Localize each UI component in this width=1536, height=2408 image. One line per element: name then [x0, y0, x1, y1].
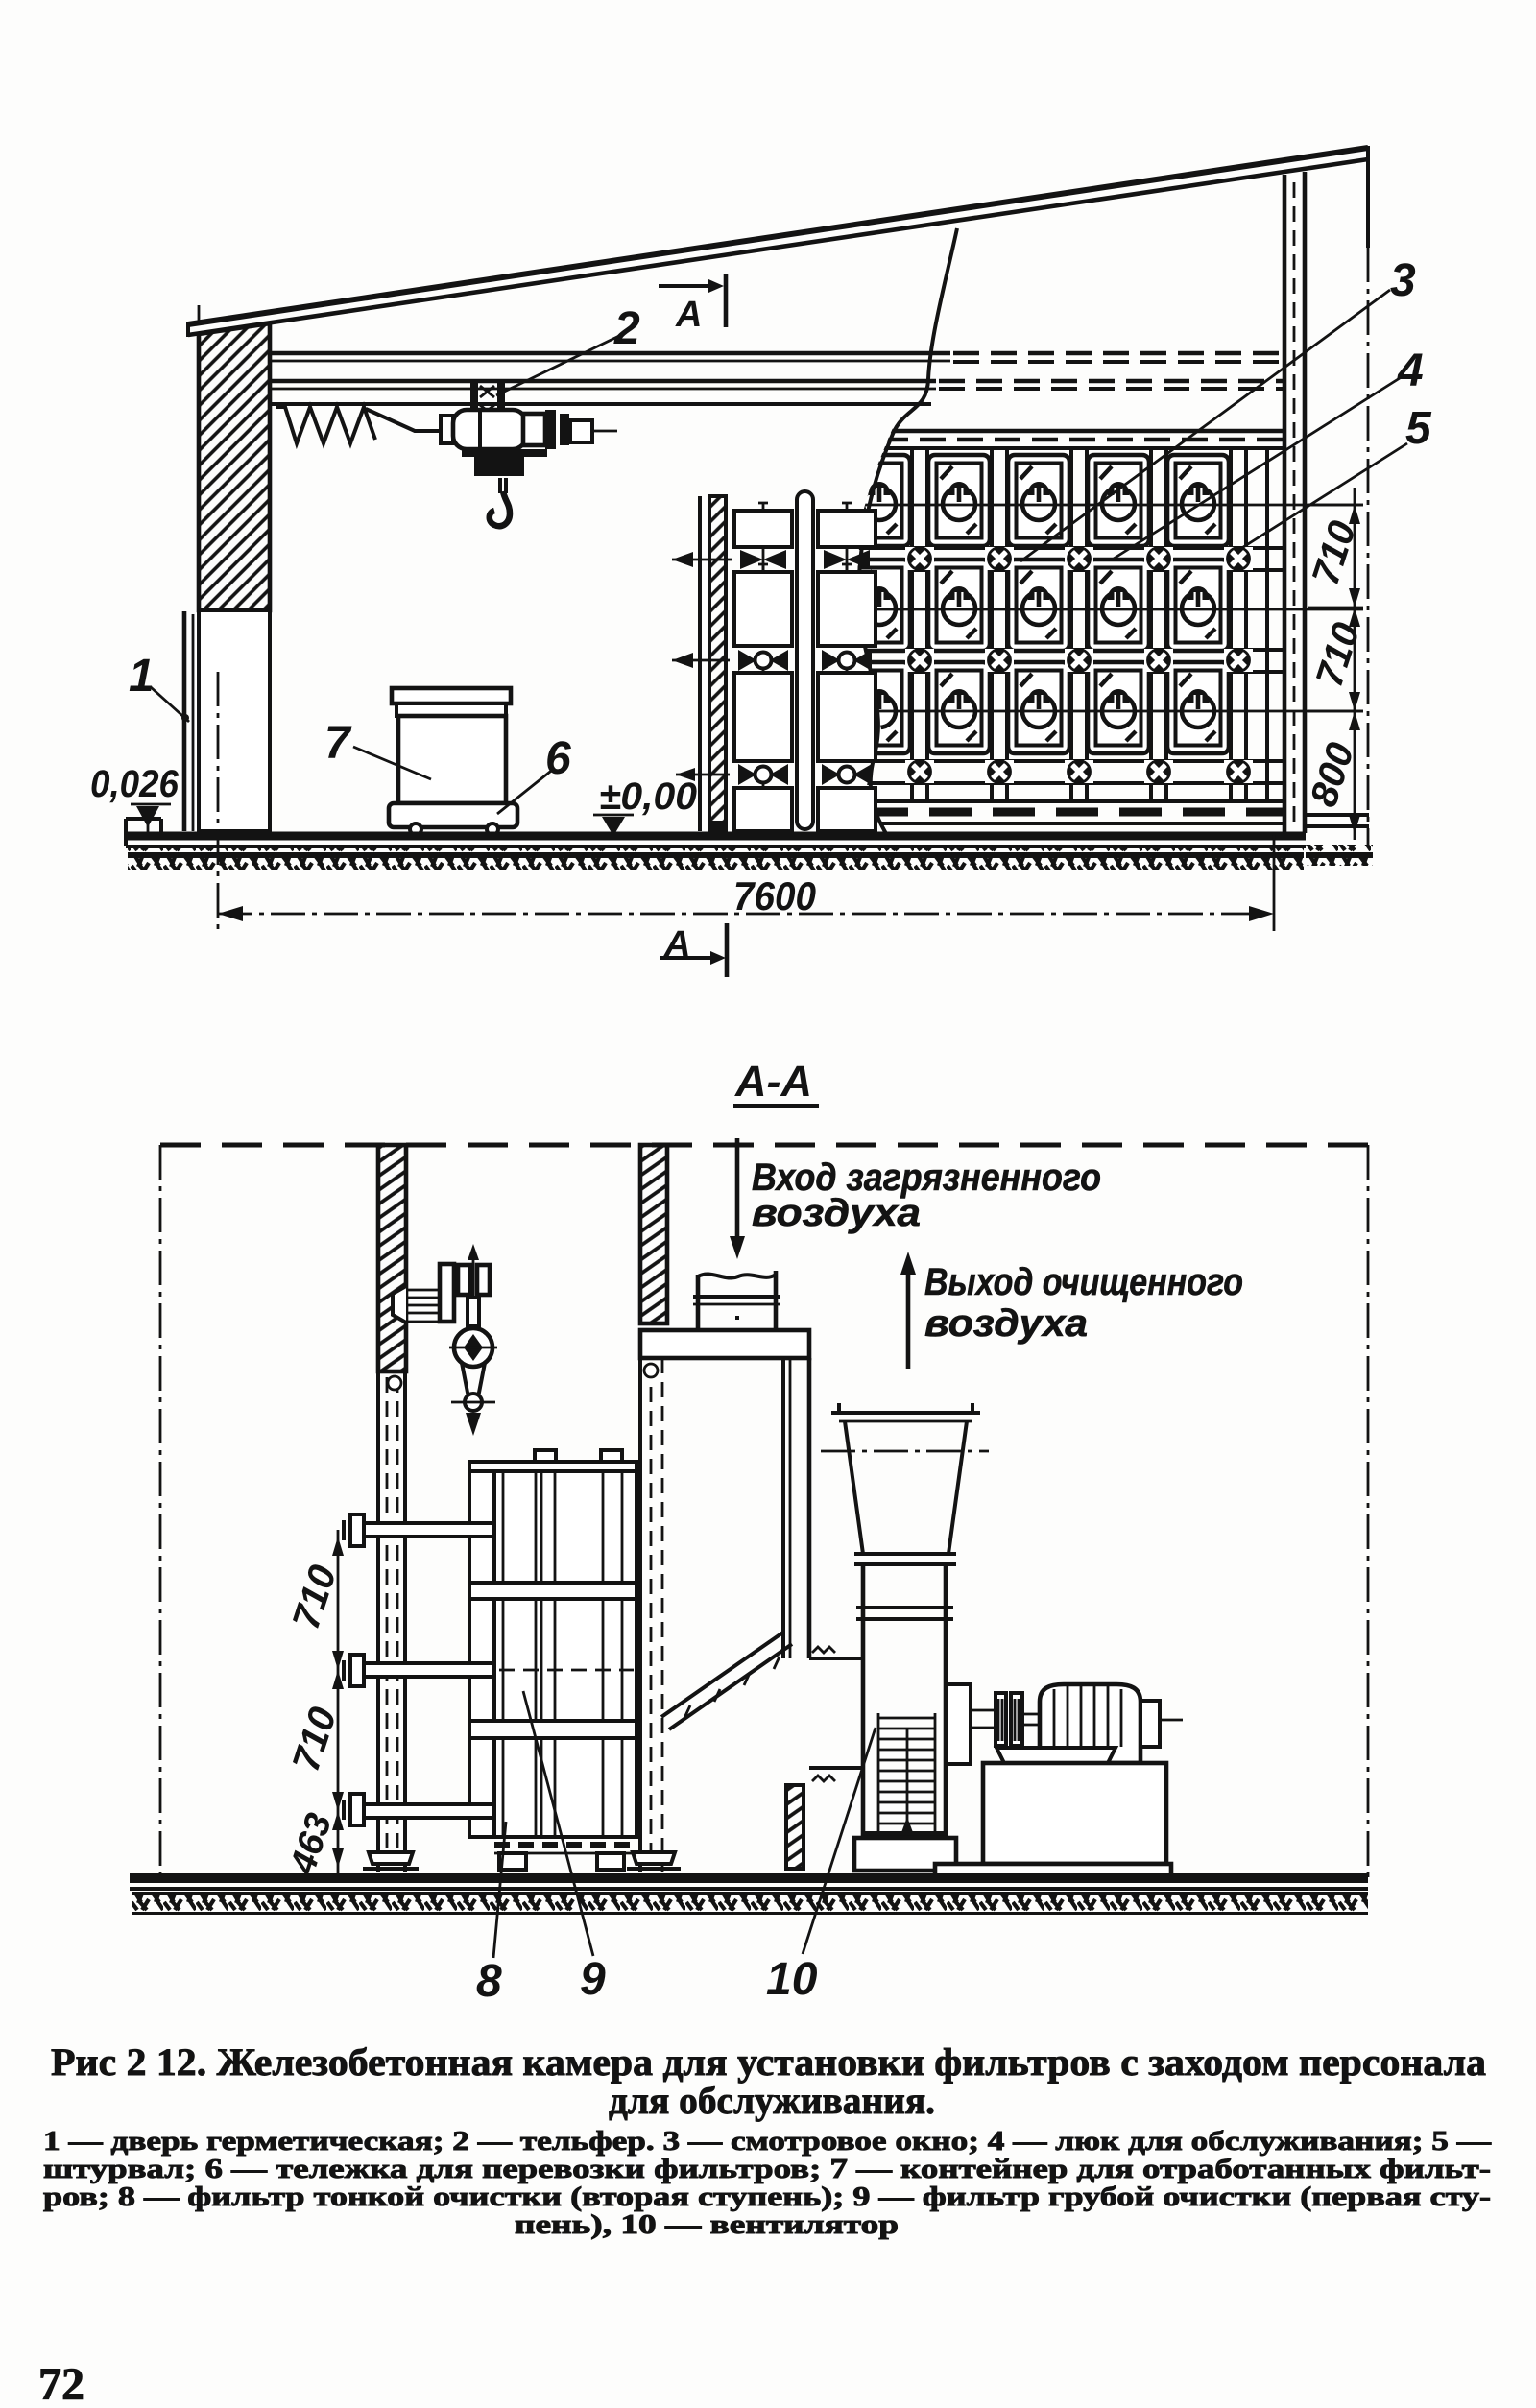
- svg-text:A: A: [675, 295, 702, 335]
- svg-text:±0,00: ±0,00: [599, 775, 697, 818]
- svg-text:пень), 10 — вентилятор: пень), 10 — вентилятор: [515, 2210, 899, 2240]
- svg-text:1 — дверь герметическая; 2 — т: 1 — дверь герметическая; 2 — тельфер. 3 …: [43, 2127, 1492, 2157]
- svg-text:1: 1: [129, 651, 155, 702]
- svg-text:4: 4: [1397, 346, 1424, 396]
- svg-text:0,026: 0,026: [90, 763, 180, 805]
- svg-text:воздуха: воздуха: [752, 1192, 921, 1234]
- svg-text:Выход очищенного: Выход очищенного: [924, 1261, 1243, 1303]
- svg-text:A: A: [663, 924, 690, 965]
- svg-text:6: 6: [545, 733, 571, 784]
- svg-text:A-A: A-A: [734, 1057, 812, 1106]
- svg-text:5: 5: [1405, 403, 1432, 454]
- svg-text:72: 72: [38, 2359, 84, 2408]
- svg-text:ров; 8 — фильтр тонкой очистки: ров; 8 — фильтр тонкой очистки (вторая с…: [43, 2182, 1491, 2212]
- svg-text:7: 7: [324, 718, 352, 769]
- svg-text:8: 8: [476, 1956, 502, 2007]
- svg-text:для обслуживания.: для обслуживания.: [609, 2079, 935, 2122]
- svg-text:2: 2: [613, 303, 640, 354]
- svg-text:штурвал; 6 — тележка для перев: штурвал; 6 — тележка для перевозки фильт…: [43, 2155, 1491, 2184]
- svg-text:3: 3: [1390, 255, 1416, 306]
- svg-text:10: 10: [766, 1954, 818, 2005]
- svg-text:9: 9: [580, 1954, 606, 2005]
- svg-text:Рис 2 12. Железобетонная камер: Рис 2 12. Железобетонная камера для уста…: [51, 2040, 1486, 2084]
- svg-text:воздуха: воздуха: [924, 1302, 1088, 1345]
- svg-text:7600: 7600: [733, 873, 816, 918]
